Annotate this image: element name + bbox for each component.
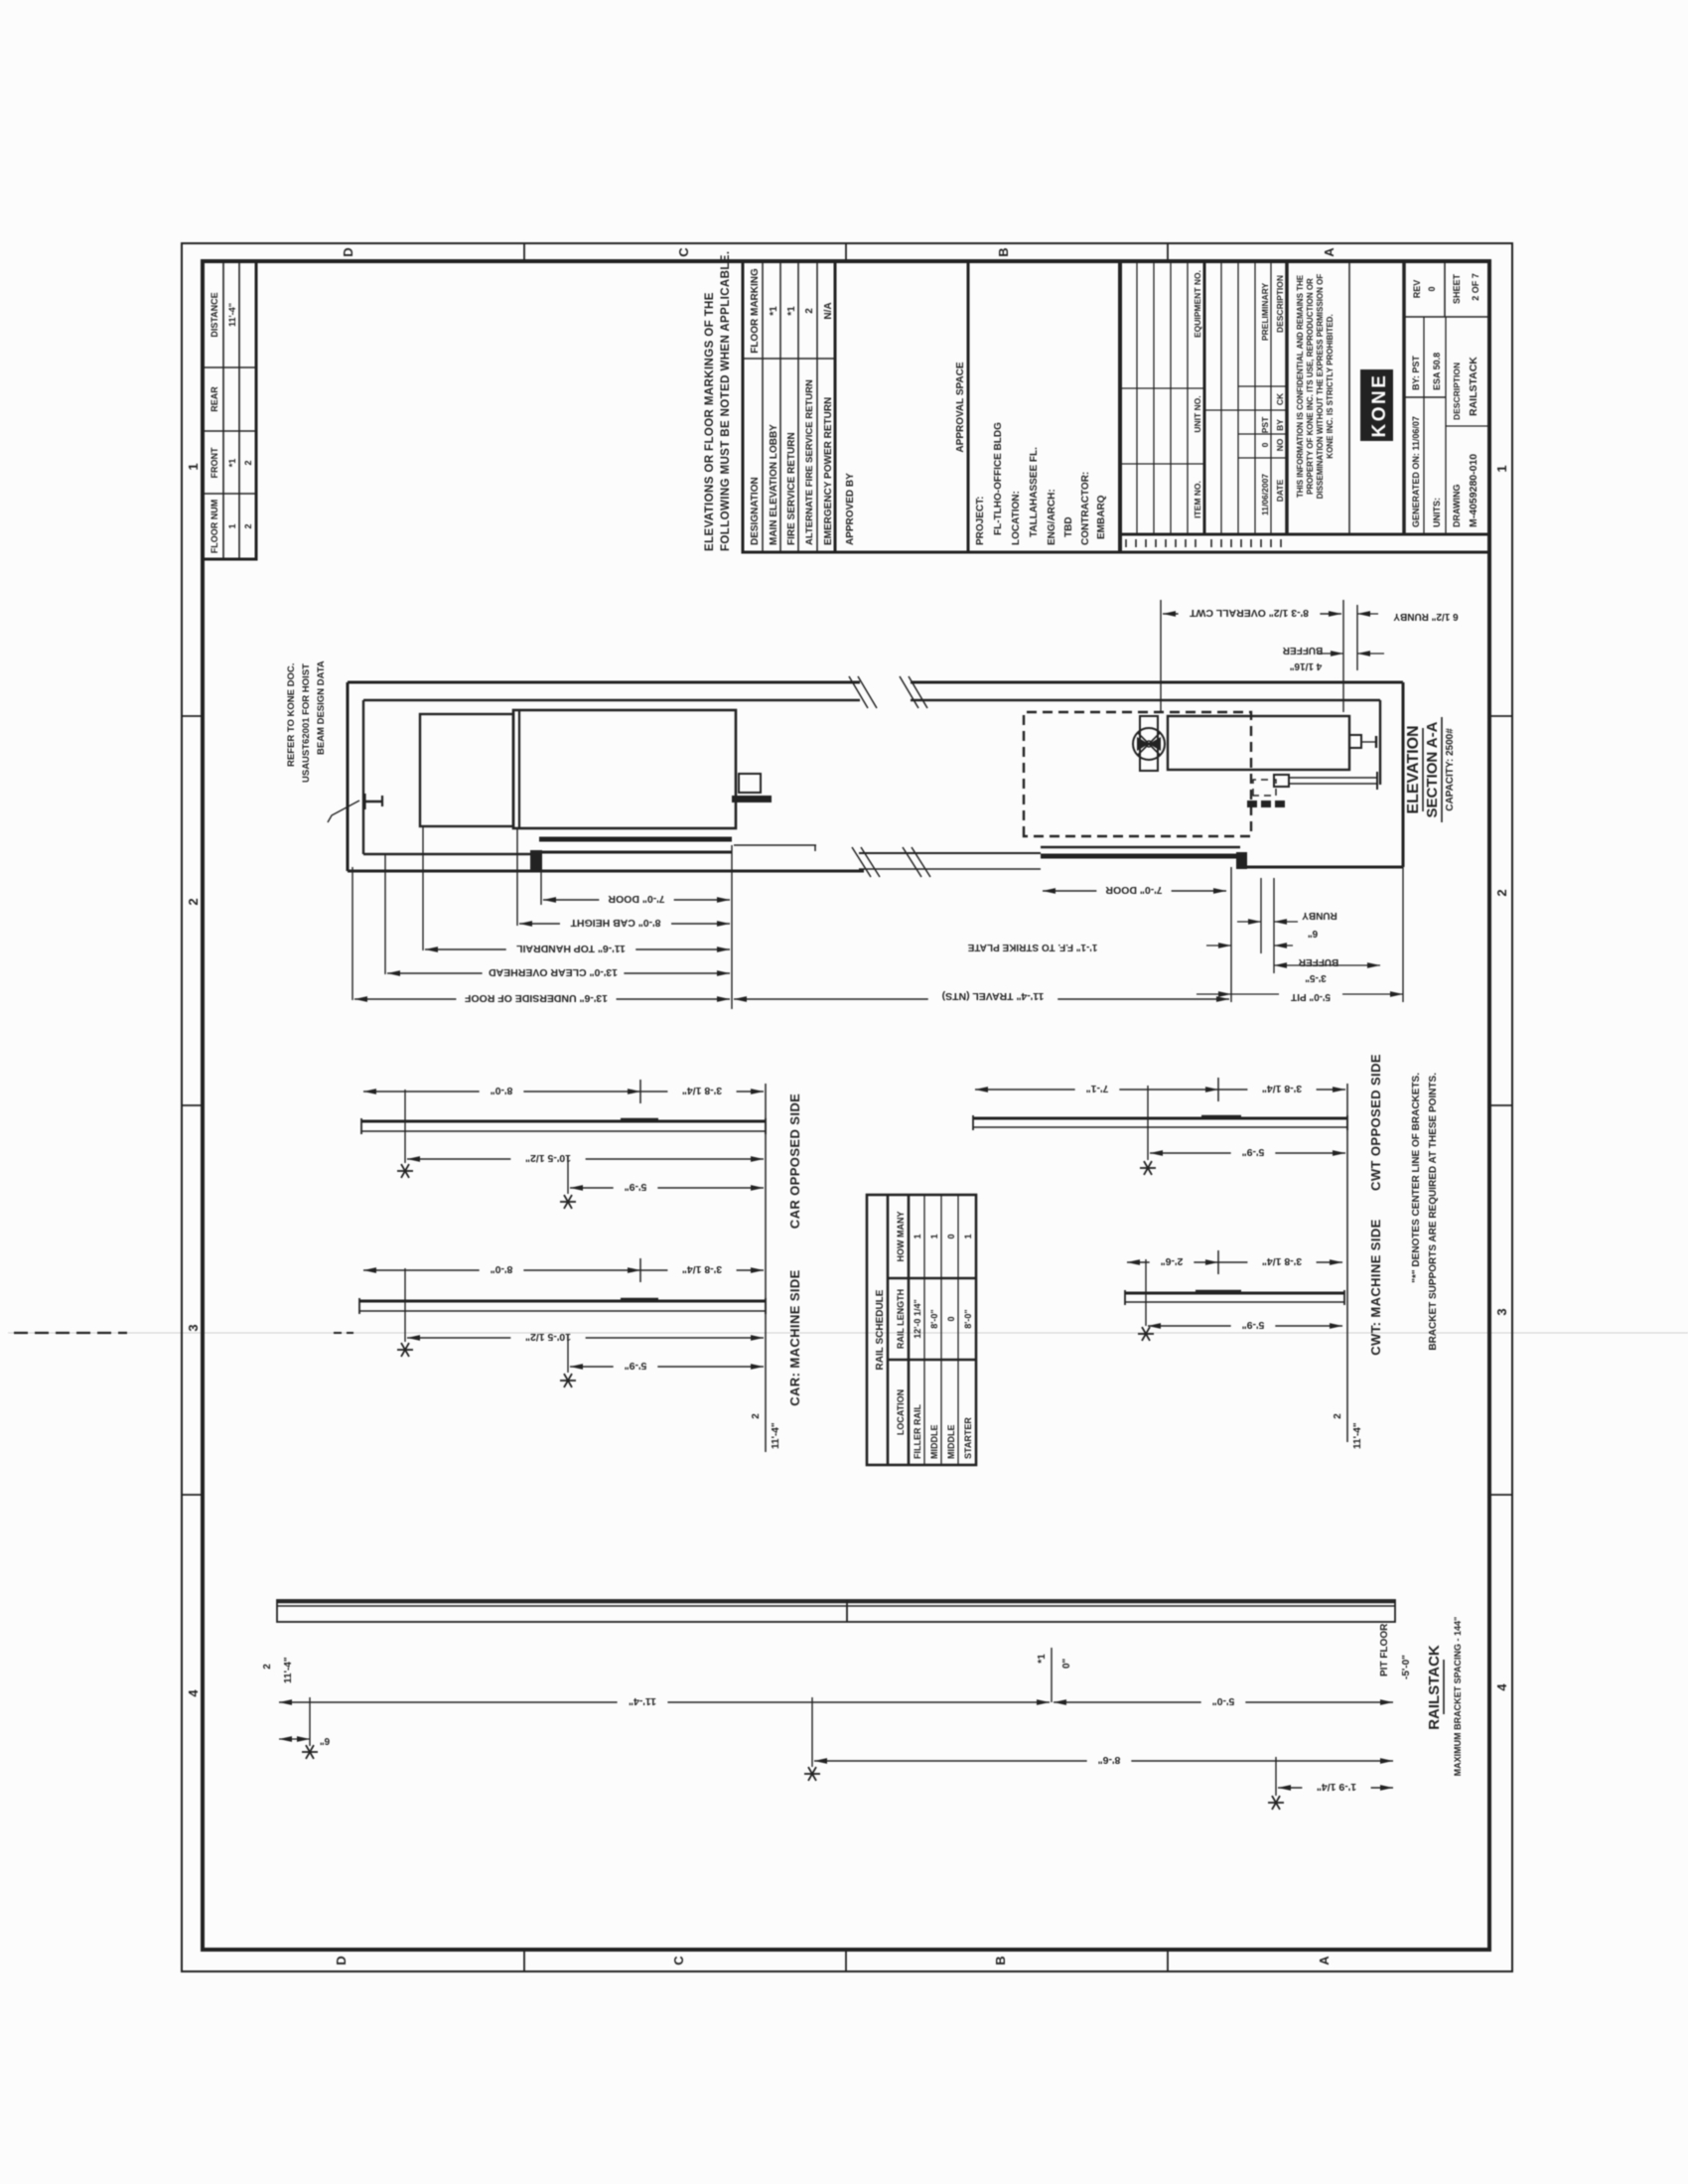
svg-text:EQUIPMENT NO.: EQUIPMENT NO. [1193,270,1202,338]
svg-text:5'-0": 5'-0" [1212,1695,1235,1707]
svg-text:SHEET: SHEET [1452,273,1462,304]
svg-text:1'-9 1/4": 1'-9 1/4" [1317,1781,1356,1793]
svg-text:RAILSTACK: RAILSTACK [1426,1645,1443,1730]
svg-text:RAIL LENGTH: RAIL LENGTH [896,1289,906,1349]
svg-text:5'-9": 5'-9" [625,1181,647,1193]
svg-text:NO: NO [1275,438,1285,451]
svg-text:FILLER RAIL: FILLER RAIL [913,1404,922,1459]
svg-text:THIS INFORMATION IS CONFIDENTI: THIS INFORMATION IS CONFIDENTIAL AND REM… [1296,274,1305,498]
svg-text:6 1/2" RUNBY: 6 1/2" RUNBY [1393,611,1459,622]
svg-text:ELEVATIONS OR FLOOR MARKINGS O: ELEVATIONS OR FLOOR MARKINGS OF THE [704,292,716,551]
svg-text:8'-0": 8'-0" [491,1263,513,1275]
svg-text:DESCRIPTION: DESCRIPTION [1452,363,1462,420]
svg-text:1'-1" F.F. TO STRIKE PLATE: 1'-1" F.F. TO STRIKE PLATE [967,942,1097,952]
svg-text:C: C [671,1956,686,1966]
svg-text:2: 2 [262,1664,273,1670]
svg-text:FLOOR MARKING: FLOOR MARKING [750,268,761,354]
svg-text:3: 3 [1494,1308,1509,1315]
svg-text:8'-0": 8'-0" [963,1309,973,1328]
svg-text:MAXIMUM BRACKET SPACING - 144": MAXIMUM BRACKET SPACING - 144" [1453,1617,1463,1777]
svg-text:0: 0 [946,1316,956,1321]
svg-text:11'-4": 11'-4" [1352,1422,1363,1449]
svg-text:D: D [341,247,355,256]
svg-text:APPROVED BY: APPROVED BY [845,473,856,545]
svg-text:PRELIMINARY: PRELIMINARY [1260,283,1270,342]
svg-text:CONTRACTOR:: CONTRACTOR: [1080,472,1091,545]
svg-text:ENG/ARCH:: ENG/ARCH: [1047,489,1057,545]
svg-text:FLOOR NUM: FLOOR NUM [210,500,219,554]
svg-text:RAILSTACK: RAILSTACK [1468,357,1479,416]
svg-text:*1: *1 [1037,1654,1048,1664]
svg-text:2: 2 [243,460,253,465]
svg-text:3'-8 1/4": 3'-8 1/4" [682,1263,722,1275]
svg-text:1: 1 [963,1234,973,1238]
svg-text:REFER TO KONE DOC.: REFER TO KONE DOC. [286,663,297,767]
svg-text:"*" DENOTES CENTER LINE OF BRA: "*" DENOTES CENTER LINE OF BRACKETS. [1411,1073,1422,1283]
svg-text:PROPERTY OF KONE INC. ITS USE,: PROPERTY OF KONE INC. ITS USE, REPRODUCT… [1306,278,1315,495]
svg-text:BY: BY [1275,419,1285,431]
svg-text:8'-3 1/2" OVERALL CWT: 8'-3 1/2" OVERALL CWT [1189,607,1308,619]
svg-text:ITEM NO.: ITEM NO. [1193,481,1202,518]
svg-text:CAR OPPOSED SIDE: CAR OPPOSED SIDE [787,1093,802,1229]
svg-text:11/06/2007: 11/06/2007 [1260,474,1270,515]
svg-text:KONE INC. IS STRICTLY PROHIBIT: KONE INC. IS STRICTLY PROHIBITED. [1326,314,1335,458]
svg-text:BUFFER: BUFFER [1298,956,1338,967]
svg-text:PIT FLOOR: PIT FLOOR [1379,1623,1390,1676]
svg-text:FL-TLHO-OFFICE BLDG: FL-TLHO-OFFICE BLDG [993,422,1004,535]
svg-text:EMERGENCY POWER RETURN: EMERGENCY POWER RETURN [823,397,834,545]
svg-text:PROJECT:: PROJECT: [975,497,986,545]
svg-text:4 1/16": 4 1/16" [1289,660,1322,671]
svg-text:3'-8 1/4": 3'-8 1/4" [1262,1255,1302,1267]
svg-text:DESIGNATION: DESIGNATION [750,477,761,545]
svg-text:0: 0 [1427,286,1437,291]
svg-text:ESA 50.8: ESA 50.8 [1432,353,1442,390]
svg-text:2: 2 [186,898,201,905]
svg-text:5'-9": 5'-9" [625,1360,647,1372]
svg-text:5'-0" PIT: 5'-0" PIT [1291,991,1331,1002]
svg-text:CK: CK [1275,392,1285,405]
svg-text:4: 4 [1494,1683,1509,1691]
svg-text:B: B [996,247,1011,256]
svg-text:1: 1 [913,1234,922,1238]
svg-text:2: 2 [1333,1413,1343,1419]
svg-text:DATE: DATE [1275,479,1285,502]
svg-text:11'-4": 11'-4" [227,303,237,327]
svg-text:10'-5 1/2": 10'-5 1/2" [525,1152,571,1164]
svg-text:FRONT: FRONT [210,447,219,478]
svg-text:*1: *1 [786,306,797,316]
svg-text:13'-6" UNDERSIDE OF ROOF: 13'-6" UNDERSIDE OF ROOF [464,992,608,1004]
svg-text:BUFFER: BUFFER [1282,645,1323,655]
svg-text:USAUST62001 FOR HOIST: USAUST62001 FOR HOIST [301,663,312,783]
svg-text:CWT OPPOSED SIDE: CWT OPPOSED SIDE [1368,1054,1383,1191]
svg-text:2: 2 [751,1413,762,1419]
svg-text:11'-4": 11'-4" [283,1657,294,1683]
svg-text:TALLAHASSEE FL.: TALLAHASSEE FL. [1029,447,1040,537]
svg-text:5'-9": 5'-9" [1242,1146,1265,1158]
svg-text:RAIL SCHEDULE: RAIL SCHEDULE [875,1289,886,1370]
svg-text:*1: *1 [769,306,779,316]
svg-text:3'-8 1/4": 3'-8 1/4" [682,1085,722,1096]
svg-text:N/A: N/A [823,302,834,319]
svg-text:2: 2 [1494,889,1509,896]
svg-text:3: 3 [186,1324,201,1331]
svg-text:ELEVATION: ELEVATION [1405,725,1422,813]
svg-text:HOW MANY: HOW MANY [896,1212,906,1262]
svg-text:ALTERNATE FIRE SERVICE RETURN: ALTERNATE FIRE SERVICE RETURN [804,379,815,545]
svg-text:4: 4 [186,1689,201,1697]
svg-text:11'-4": 11'-4" [629,1695,656,1707]
svg-text:DRAWING: DRAWING [1452,485,1462,528]
svg-text:1: 1 [1494,465,1509,472]
svg-text:FOLLOWING MUST BE NOTED WHEN A: FOLLOWING MUST BE NOTED WHEN APPLICABLE. [720,251,732,551]
svg-text:MAIN ELEVATION LOBBY: MAIN ELEVATION LOBBY [769,424,779,545]
svg-text:2: 2 [804,308,815,314]
svg-text:D: D [334,1956,349,1965]
svg-text:STARTER: STARTER [963,1417,973,1459]
svg-text:EMBARQ: EMBARQ [1096,495,1107,539]
svg-text:11'-6" TOP HANDRAIL: 11'-6" TOP HANDRAIL [516,943,626,954]
svg-text:UNITS:: UNITS: [1432,498,1442,527]
svg-text:3'-5": 3'-5" [1305,972,1327,983]
svg-text:11'-4" TRAVEL (NTS): 11'-4" TRAVEL (NTS) [942,990,1045,1002]
svg-text:M-4059280-010: M-4059280-010 [1468,454,1479,527]
svg-text:A: A [1317,1956,1332,1966]
svg-text:SECTION A-A: SECTION A-A [1424,721,1441,817]
svg-text:GENERATED ON: 11/06/07: GENERATED ON: 11/06/07 [1411,416,1421,527]
svg-text:DISTANCE: DISTANCE [210,292,219,337]
svg-text:*1: *1 [227,459,237,468]
svg-text:RUNBY: RUNBY [1302,910,1337,921]
svg-text:MIDDLE: MIDDLE [929,1425,939,1460]
svg-text:11'-4": 11'-4" [771,1422,781,1449]
svg-text:8'-0" CAB HEIGHT: 8'-0" CAB HEIGHT [570,917,660,929]
svg-text:0: 0 [946,1234,956,1238]
svg-text:REV: REV [1412,280,1422,299]
svg-text:REAR: REAR [210,386,219,412]
svg-text:2'-6": 2'-6" [1161,1255,1184,1267]
svg-text:1: 1 [929,1234,939,1238]
svg-text:B: B [993,1956,1008,1965]
svg-text:UNIT NO.: UNIT NO. [1193,395,1202,432]
svg-text:FIRE SERVICE RETURN: FIRE SERVICE RETURN [786,432,797,545]
svg-text:-5'-0": -5'-0" [1401,1655,1412,1679]
svg-text:LOCATION:: LOCATION: [1011,491,1022,545]
svg-text:0": 0" [1061,1658,1072,1669]
svg-text:CWT: MACHINE SIDE: CWT: MACHINE SIDE [1368,1219,1383,1356]
svg-text:CAR: MACHINE SIDE: CAR: MACHINE SIDE [787,1269,802,1406]
svg-text:8'-0": 8'-0" [929,1309,939,1328]
svg-text:6": 6" [320,1735,331,1746]
svg-text:DISSEMINATION WITHOUT THE EXPR: DISSEMINATION WITHOUT THE EXPRESS PERMIS… [1316,274,1325,500]
svg-text:KONE: KONE [1369,373,1390,438]
svg-text:2 OF 7: 2 OF 7 [1471,273,1480,301]
svg-text:10'-5 1/2": 10'-5 1/2" [525,1331,571,1343]
svg-text:1: 1 [186,463,201,470]
svg-text:LOCATION: LOCATION [896,1389,906,1435]
svg-text:BRACKET SUPPORTS ARE REQUIRED: BRACKET SUPPORTS ARE REQUIRED AT THESE P… [1428,1073,1439,1351]
svg-text:C: C [676,247,691,257]
svg-text:DESCRIPTION: DESCRIPTION [1275,275,1285,333]
svg-text:5'-9": 5'-9" [1242,1319,1265,1331]
svg-text:CAPACITY: 2500#: CAPACITY: 2500# [1445,728,1456,811]
svg-text:0: 0 [1260,442,1270,447]
svg-text:BEAM DESIGN DATA: BEAM DESIGN DATA [316,660,327,755]
svg-text:1: 1 [227,523,237,528]
svg-text:8'-0": 8'-0" [491,1085,513,1096]
svg-text:13'-0" CLEAR OVERHEAD: 13'-0" CLEAR OVERHEAD [489,966,618,978]
svg-text:2: 2 [243,523,253,528]
svg-text:7'-1": 7'-1" [1086,1083,1109,1094]
svg-text:3'-8 1/4": 3'-8 1/4" [1262,1083,1302,1094]
svg-text:7'-0" DOOR: 7'-0" DOOR [1105,884,1162,896]
svg-text:TBD: TBD [1063,516,1074,537]
svg-text:BY: PST: BY: PST [1411,356,1421,390]
svg-text:12'-0 1/4": 12'-0 1/4" [913,1299,922,1338]
svg-text:APPROVAL SPACE: APPROVAL SPACE [955,362,966,452]
svg-text:6": 6" [1308,928,1319,939]
svg-text:A: A [1322,247,1336,257]
svg-text:PST: PST [1260,416,1270,433]
svg-text:7'-0" DOOR: 7'-0" DOOR [608,893,664,905]
svg-text:8'-6": 8'-6" [1098,1754,1121,1766]
svg-text:MIDDLE: MIDDLE [946,1425,956,1460]
